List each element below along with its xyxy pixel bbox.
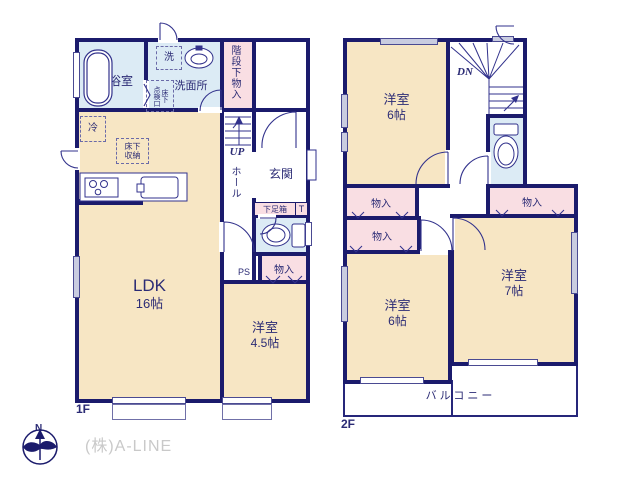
floor1-label: 1F (76, 402, 90, 416)
closet-1f-label: 物入 (274, 261, 294, 276)
room-7-label: 洋室 7帖 (450, 268, 578, 298)
hall-label: ホール (228, 166, 240, 214)
stairs-up-label: UP (221, 146, 253, 159)
kitchen-half-wall (79, 199, 143, 205)
western-45-name: 洋室 (252, 320, 278, 336)
closet-2f-left-upper-label: 物入 (371, 195, 391, 210)
room-6-bottom-name: 洋室 (384, 298, 410, 314)
ps-label: PS (231, 267, 257, 278)
side-door-opening (74, 148, 80, 170)
genkan-label: 玄関 (260, 167, 302, 181)
room-6-top-left-window-2 (341, 132, 348, 152)
stairs-down-label: DN (450, 66, 480, 79)
closet-2f-left-lower: 物入 (343, 216, 421, 254)
toilet-mark-label: T (299, 204, 305, 214)
hall-ldk-door-opening (219, 222, 225, 252)
western-45-bottom-window (222, 397, 272, 404)
fridge-space: 冷 (80, 116, 106, 142)
closet-2f-right: 物入 (486, 184, 578, 218)
ldk-size: 16帖 (136, 296, 163, 312)
room-6-top-door-opening (445, 150, 451, 184)
stair-storage-label: 階段下物入 (228, 45, 240, 109)
laundry-label: 洗 (164, 52, 174, 64)
north-label: N (35, 423, 42, 435)
western-45-size: 4.5帖 (251, 336, 280, 350)
fridge-label: 冷 (88, 123, 98, 135)
toilet-2f-door-opening (485, 152, 491, 184)
room-7-balcony-window (468, 359, 538, 366)
room-6-bottom-door-opening (420, 249, 448, 255)
room-6-top-name: 洋室 (383, 92, 409, 108)
floorplan-canvas: 物入 物入 物入 物入 下足箱 T (0, 0, 640, 480)
bath-label: 浴室 (92, 74, 150, 88)
room-6-bottom-size: 6帖 (388, 314, 407, 328)
ldk-name: LDK (133, 276, 166, 296)
room-6-top-label: 洋室 6帖 (343, 92, 450, 122)
room-7-size: 7帖 (505, 284, 524, 298)
ldk-label: LDK 16帖 (75, 276, 224, 312)
closet-2f-right-label: 物入 (522, 194, 542, 209)
toilet-1f-window (305, 222, 312, 246)
stairwell-top-sill (492, 36, 514, 42)
laundry-space: 洗 (156, 46, 182, 70)
room-toilet-1f (252, 214, 310, 256)
closet-2f-left-lower-label: 物入 (372, 228, 392, 243)
washroom-door-opening (198, 107, 222, 113)
bath-window (73, 52, 80, 98)
room-6-top-size: 6帖 (387, 108, 406, 122)
washroom-label: 洗面所 (164, 80, 218, 93)
entrance-porch (252, 38, 310, 112)
toilet-mark-box: T (295, 202, 308, 216)
underfloor-storage-label: 床下 収納 (125, 142, 141, 160)
room-6-bottom-balcony-window (360, 377, 424, 384)
floor2-label: 2F (341, 417, 355, 431)
western-45-label: 洋室 4.5帖 (220, 320, 310, 350)
room-toilet-2f (486, 114, 527, 190)
balcony-label: バルコニー (393, 390, 528, 403)
back-door-opening (158, 37, 178, 43)
room-6-top-north-window (380, 38, 438, 45)
room-7-name: 洋室 (501, 268, 527, 284)
closet-2f-left-upper: 物入 (343, 184, 419, 220)
underfloor-storage-box: 床下 収納 (116, 138, 149, 164)
ldk-bottom-window (112, 397, 186, 404)
room-ldk (75, 108, 224, 403)
room-7-door-opening (449, 218, 455, 250)
company-logo-text: (株)A-LINE (85, 437, 172, 456)
toilet-1f-door-opening (258, 214, 276, 219)
room-6-bottom-label: 洋室 6帖 (343, 298, 452, 328)
western-45-window-bay (222, 404, 272, 420)
shoe-box-label: 下足箱 (263, 204, 287, 215)
ldk-window-bay (112, 404, 186, 420)
